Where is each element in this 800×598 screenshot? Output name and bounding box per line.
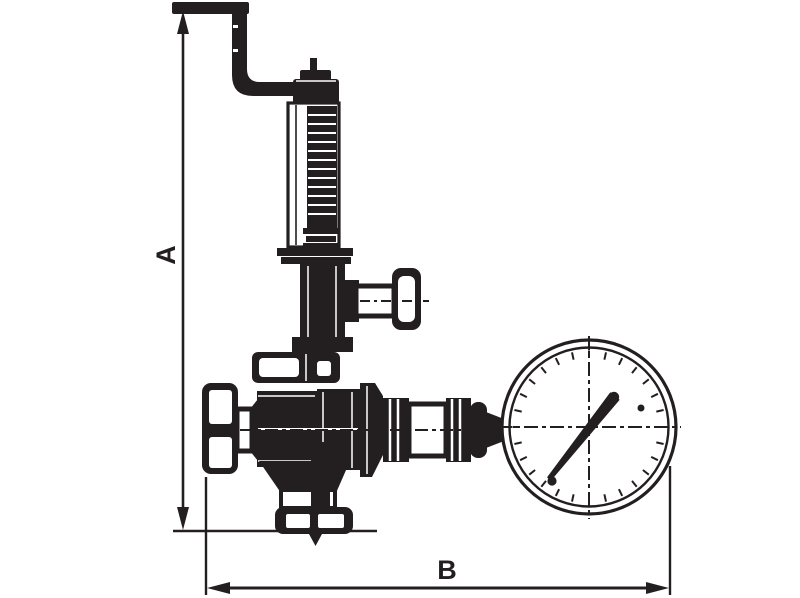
hex-facet-window-left	[259, 358, 299, 377]
left-wheel-window-top	[209, 390, 232, 424]
bonnet-step	[292, 337, 353, 352]
right-handwheel	[345, 268, 429, 330]
flange-window-right	[318, 514, 344, 528]
needle-tip-cap	[609, 392, 619, 402]
bonnet-assembly	[277, 248, 353, 352]
spring-flange-upper	[277, 248, 353, 256]
cap-body	[293, 79, 339, 104]
pressure-gauge	[498, 336, 681, 519]
wheel-rim-window	[398, 276, 415, 322]
gauge-face-dot	[638, 405, 645, 412]
dim-b-label: B	[437, 555, 457, 585]
lever-notch-2	[233, 49, 238, 52]
outlet-tip	[309, 534, 322, 546]
lever-handle	[172, 2, 311, 96]
hex-facet-window-right	[317, 361, 331, 376]
dim-b-arrow-left-icon	[207, 582, 230, 594]
dim-a-label: A	[151, 245, 181, 265]
stem-cap	[293, 58, 339, 104]
adjusting-nut	[303, 228, 339, 248]
lever-top-bar	[172, 2, 249, 14]
hex-flange	[252, 352, 340, 383]
flange-window-left	[286, 514, 310, 528]
spring-housing	[288, 103, 339, 248]
valve-technical-drawing: A B	[0, 0, 800, 598]
dim-a-arrow-up-icon	[177, 11, 189, 34]
needle-tail-dot	[547, 476, 556, 485]
left-wheel-window-bottom	[209, 437, 232, 468]
dim-b-arrow-right-icon	[646, 582, 669, 594]
lever-notch-1	[233, 25, 238, 28]
spring-flange-lower	[281, 257, 351, 264]
drawing-canvas: A B	[0, 0, 800, 598]
dim-a-arrow-down-icon	[177, 507, 189, 530]
